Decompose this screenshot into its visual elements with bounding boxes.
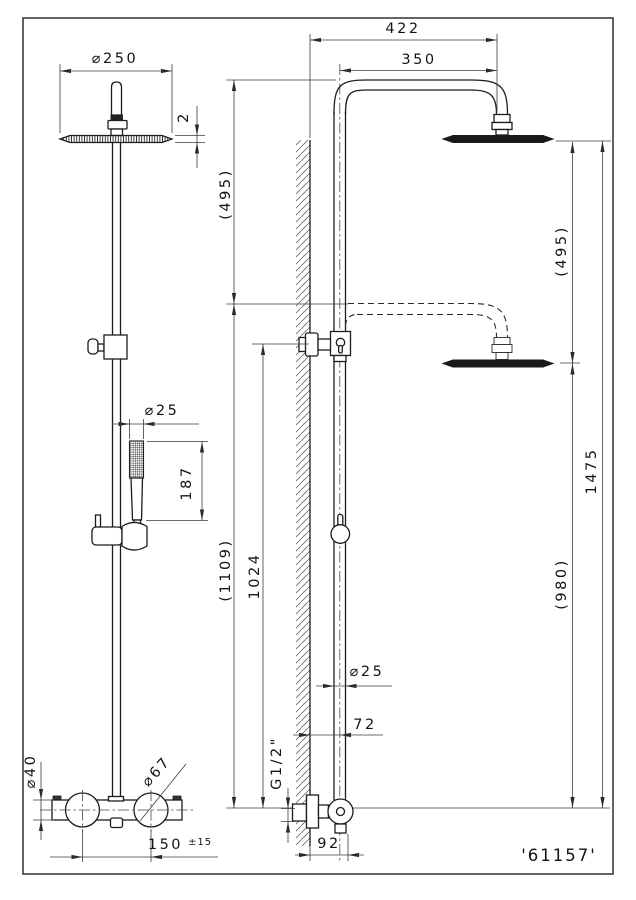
hand-shower bbox=[130, 441, 144, 527]
wall-section bbox=[296, 140, 310, 846]
dim-travel-head: (495) bbox=[555, 225, 570, 277]
dim-column-diameter: ⌀25 bbox=[350, 665, 385, 680]
lowered-arm-dashed bbox=[346, 304, 554, 368]
slider-bracket bbox=[88, 335, 127, 359]
dim-inlet-spacing: 150±15 bbox=[148, 838, 212, 853]
dim-arm-projection: 422 bbox=[385, 22, 420, 37]
dim-wall-to-valve: 92 bbox=[317, 837, 340, 852]
dim-inlet-spacing-value: 150 bbox=[148, 837, 183, 853]
dim-column-wall-offset: 72 bbox=[353, 718, 376, 733]
head-disc-front bbox=[60, 136, 172, 143]
dim-body-diameter: ⌀40 bbox=[24, 754, 39, 789]
overhead-shower-side bbox=[443, 115, 553, 143]
dim-travel-upper: (495) bbox=[219, 168, 234, 220]
drawing-border bbox=[23, 18, 613, 874]
dim-lowered-head-height: (980) bbox=[555, 558, 570, 610]
dim-overall-height: 1475 bbox=[585, 448, 600, 495]
dim-inlet-spacing-tolerance: ±15 bbox=[188, 837, 212, 848]
overhead-shower-front bbox=[60, 82, 172, 143]
dim-head-thickness: 2 bbox=[177, 111, 192, 123]
valve-front bbox=[40, 790, 194, 832]
lowered-head-disc bbox=[443, 360, 553, 367]
dim-inlet-thread: G1/2" bbox=[270, 736, 285, 790]
dim-head-diameter: ⌀250 bbox=[92, 52, 138, 67]
hose-outlet bbox=[111, 818, 123, 828]
shower-arm bbox=[334, 80, 508, 800]
column-pipe bbox=[113, 143, 121, 801]
dim-arm-projection-center: 350 bbox=[401, 53, 436, 68]
dim-handshower-length: 187 bbox=[180, 465, 195, 500]
dim-column-top-height: (1109) bbox=[219, 538, 234, 601]
technical-drawing bbox=[0, 0, 636, 900]
front-view bbox=[33, 64, 218, 862]
part-number: '61157' bbox=[521, 848, 597, 865]
dim-handshower-diameter: ⌀25 bbox=[145, 404, 180, 419]
front-dimensions bbox=[33, 64, 218, 862]
drawing-sheet: ⌀250 2 ⌀25 187 ⌀40 ⌀67 150±15 422 350 (4… bbox=[0, 0, 636, 900]
dim-bracket-height: 1024 bbox=[248, 553, 263, 600]
